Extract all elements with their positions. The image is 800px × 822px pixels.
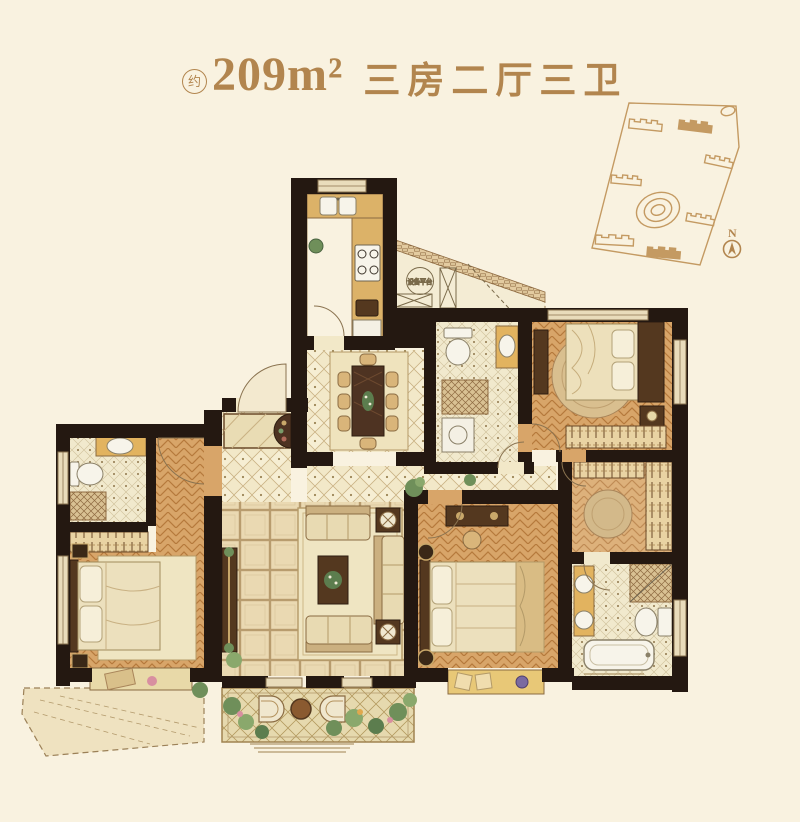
pillow [80, 606, 102, 642]
headboard [70, 560, 78, 652]
bedside-decor [418, 544, 434, 560]
pillow [432, 608, 452, 646]
toilet [444, 328, 472, 365]
decor-plate [516, 676, 528, 688]
washing-machine [442, 418, 474, 452]
kitchen [307, 194, 383, 338]
closet-rug [584, 490, 632, 538]
nightstand [72, 654, 88, 668]
nightstand [72, 544, 88, 558]
master-dresser [446, 506, 508, 526]
bedside-decor [418, 650, 434, 666]
headboard [420, 560, 430, 652]
terrace [22, 688, 204, 756]
pillow [432, 566, 452, 604]
toilet [70, 462, 103, 486]
balcony-chair [320, 696, 345, 722]
pillow [612, 362, 634, 390]
shower-area [70, 492, 106, 520]
floorplan-page: 约 209m² 三房二厅三卫 N [0, 0, 800, 822]
sofa [306, 506, 370, 540]
dresser-chair [463, 531, 481, 549]
table-plant [324, 571, 342, 589]
sofa-l [374, 536, 404, 624]
wash-basin [499, 335, 515, 357]
plant [192, 682, 208, 698]
sofa-bottom [306, 616, 372, 652]
pillow [612, 330, 634, 358]
kitchen-appliance [356, 300, 378, 316]
wash-basin [575, 575, 593, 593]
headboard [638, 322, 664, 402]
dresser [534, 330, 548, 394]
wash-basin [575, 611, 593, 629]
refrigerator [353, 320, 381, 337]
left-bedroom-nook-floor [156, 438, 204, 552]
toilet [635, 608, 672, 636]
stove [355, 245, 380, 281]
wash-basin [107, 438, 133, 454]
entry-door [238, 364, 286, 412]
wardrobe [566, 426, 666, 448]
closet-hangers-right [646, 462, 672, 550]
dining-room [330, 352, 408, 450]
shower-area [442, 380, 488, 414]
balcony-chair [259, 696, 284, 722]
lamp-side-table [376, 620, 400, 644]
floor-plan: 设备平台 [0, 0, 800, 822]
equipment-platform-label: 设备平台 [408, 277, 433, 286]
balcony-steps [250, 744, 354, 752]
closet-hangers-top [574, 462, 644, 478]
kitchen-stool [309, 239, 323, 253]
entry-hall [224, 414, 291, 448]
pillow [80, 566, 102, 602]
balcony-table [291, 699, 311, 719]
lamp-side-table [376, 508, 400, 532]
flower-decor [147, 676, 157, 686]
table-centerpiece [362, 391, 374, 411]
